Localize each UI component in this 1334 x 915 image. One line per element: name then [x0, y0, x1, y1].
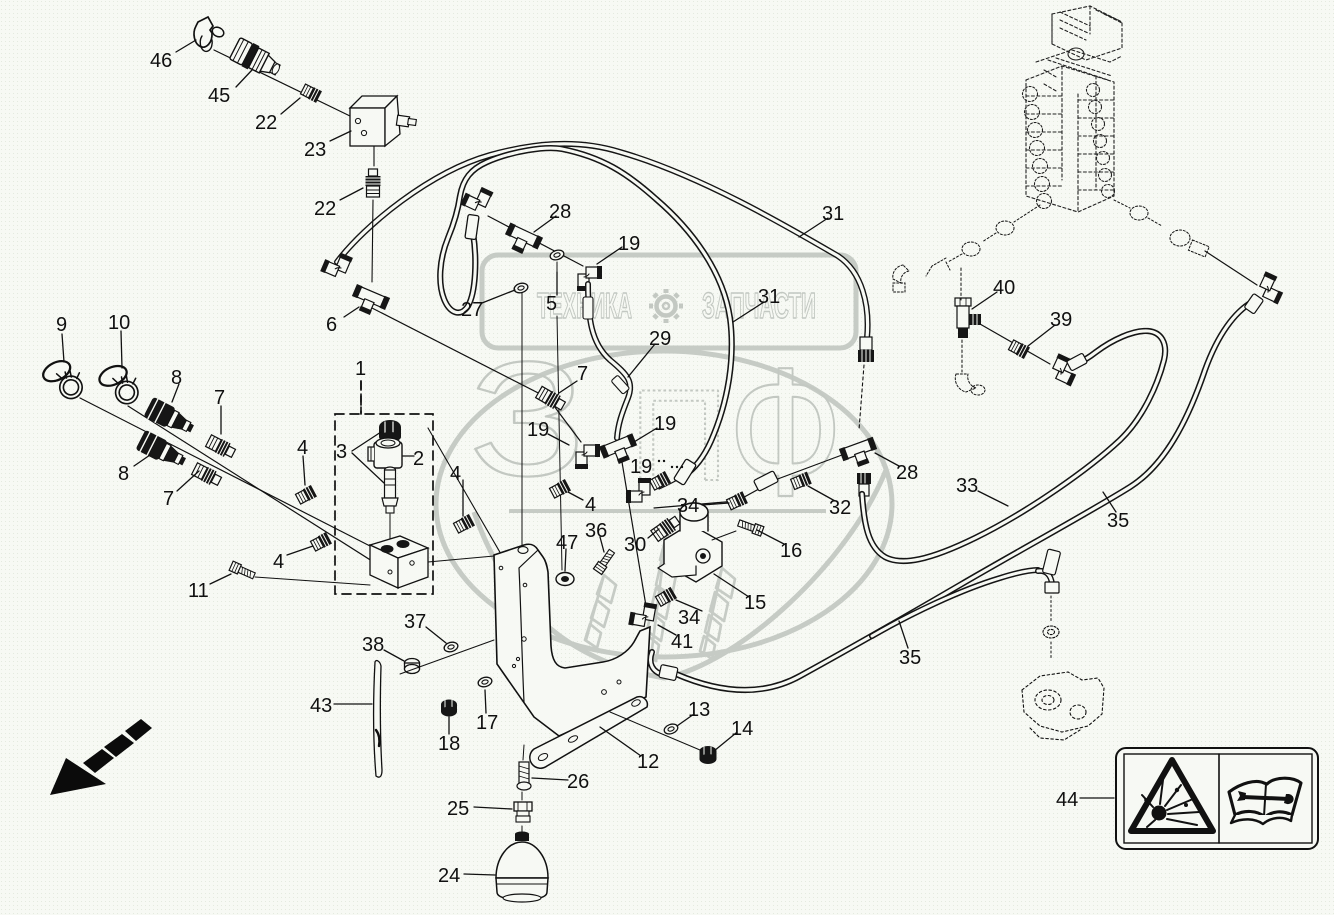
svg-text:17: 17 [476, 712, 498, 734]
svg-text:28: 28 [896, 462, 918, 484]
svg-text:3: 3 [336, 441, 347, 463]
svg-text:4: 4 [273, 551, 284, 573]
svg-text:9: 9 [56, 314, 67, 336]
svg-text:36: 36 [585, 520, 607, 542]
svg-text:34: 34 [677, 495, 699, 517]
svg-text:24: 24 [438, 865, 460, 887]
svg-text:14: 14 [731, 718, 753, 740]
svg-text:45: 45 [208, 85, 230, 107]
svg-text:5: 5 [546, 293, 557, 315]
svg-text:22: 22 [314, 198, 336, 220]
svg-text:39: 39 [1050, 309, 1072, 331]
svg-text:35: 35 [1107, 510, 1129, 532]
svg-text:11: 11 [188, 580, 209, 602]
svg-text:7: 7 [577, 363, 588, 385]
svg-text:23: 23 [304, 139, 326, 161]
svg-text:37: 37 [404, 611, 426, 633]
svg-text:44: 44 [1056, 789, 1078, 811]
svg-text:35: 35 [899, 647, 921, 669]
svg-text:19: 19 [630, 456, 652, 478]
svg-text:1: 1 [355, 358, 366, 380]
svg-text:40: 40 [993, 277, 1015, 299]
svg-text:46: 46 [150, 50, 172, 72]
svg-text:10: 10 [108, 312, 130, 334]
svg-text:33: 33 [956, 475, 978, 497]
svg-text:12: 12 [637, 751, 659, 773]
svg-text:34: 34 [678, 607, 700, 629]
svg-text:26: 26 [567, 771, 589, 793]
svg-text:38: 38 [362, 634, 384, 656]
svg-text:4: 4 [297, 437, 308, 459]
svg-text:19: 19 [618, 233, 640, 255]
svg-text:7: 7 [163, 488, 174, 510]
svg-text:31: 31 [822, 203, 844, 225]
svg-text:13: 13 [688, 699, 710, 721]
svg-text:4: 4 [450, 463, 461, 485]
svg-text:6: 6 [326, 314, 337, 336]
svg-text:27: 27 [461, 299, 483, 321]
svg-text:8: 8 [118, 463, 129, 485]
svg-text:29: 29 [649, 328, 671, 350]
svg-text:19: 19 [527, 419, 549, 441]
svg-text:30: 30 [624, 534, 646, 556]
svg-text:47: 47 [556, 532, 578, 554]
svg-text:15: 15 [744, 592, 766, 614]
svg-text:16: 16 [780, 540, 802, 562]
svg-text:41: 41 [671, 631, 693, 653]
svg-text:28: 28 [549, 201, 571, 223]
svg-text:43: 43 [310, 695, 332, 717]
svg-text:4: 4 [585, 494, 596, 516]
svg-text:32: 32 [829, 497, 851, 519]
svg-text:22: 22 [255, 112, 277, 134]
svg-text:25: 25 [447, 798, 469, 820]
svg-text:2: 2 [413, 448, 424, 470]
svg-text:7: 7 [214, 387, 225, 409]
svg-text:8: 8 [171, 367, 182, 389]
svg-text:18: 18 [438, 733, 460, 755]
svg-text:19: 19 [654, 413, 676, 435]
svg-text:31: 31 [758, 286, 780, 308]
